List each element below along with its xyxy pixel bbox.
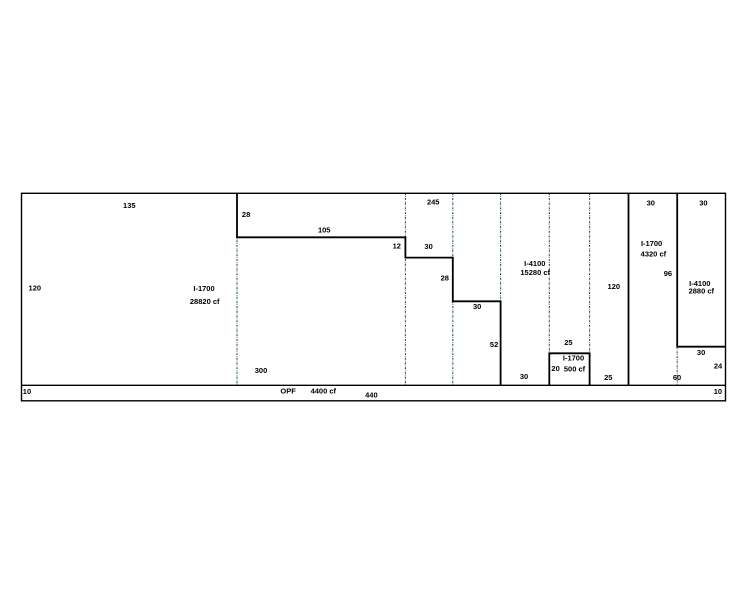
svg-text:I-1700: I-1700 [563, 354, 584, 363]
svg-text:500 cf: 500 cf [564, 364, 586, 373]
svg-text:440: 440 [365, 390, 378, 399]
svg-text:30: 30 [647, 199, 655, 208]
svg-text:2880 cf: 2880 cf [689, 286, 715, 295]
svg-text:245: 245 [427, 197, 440, 206]
svg-text:4400 cf: 4400 cf [311, 386, 337, 395]
svg-text:24: 24 [714, 361, 723, 370]
svg-text:30: 30 [473, 302, 481, 311]
svg-text:105: 105 [318, 226, 331, 235]
svg-text:4320 cf: 4320 cf [641, 249, 667, 258]
svg-text:30: 30 [424, 242, 432, 251]
svg-text:10: 10 [714, 387, 722, 396]
svg-text:300: 300 [255, 366, 268, 375]
svg-text:I-4100: I-4100 [524, 259, 545, 268]
svg-text:30: 30 [697, 348, 705, 357]
svg-text:10: 10 [23, 387, 31, 396]
svg-text:52: 52 [490, 340, 498, 349]
svg-text:96: 96 [664, 269, 672, 278]
svg-text:20: 20 [551, 364, 559, 373]
svg-text:25: 25 [564, 338, 572, 347]
svg-text:60: 60 [673, 373, 681, 382]
svg-text:I-1700: I-1700 [193, 284, 214, 293]
svg-text:30: 30 [520, 372, 528, 381]
svg-text:28: 28 [242, 210, 250, 219]
svg-text:15280 cf: 15280 cf [520, 268, 550, 277]
svg-text:25: 25 [604, 373, 612, 382]
svg-text:135: 135 [123, 201, 136, 210]
svg-text:12: 12 [393, 242, 401, 251]
svg-text:120: 120 [29, 283, 42, 292]
svg-text:120: 120 [608, 282, 621, 291]
svg-text:OPF: OPF [280, 386, 296, 395]
svg-text:28820 cf: 28820 cf [190, 297, 220, 306]
svg-text:28: 28 [441, 274, 449, 283]
svg-text:I-1700: I-1700 [641, 239, 662, 248]
svg-text:30: 30 [699, 199, 707, 208]
